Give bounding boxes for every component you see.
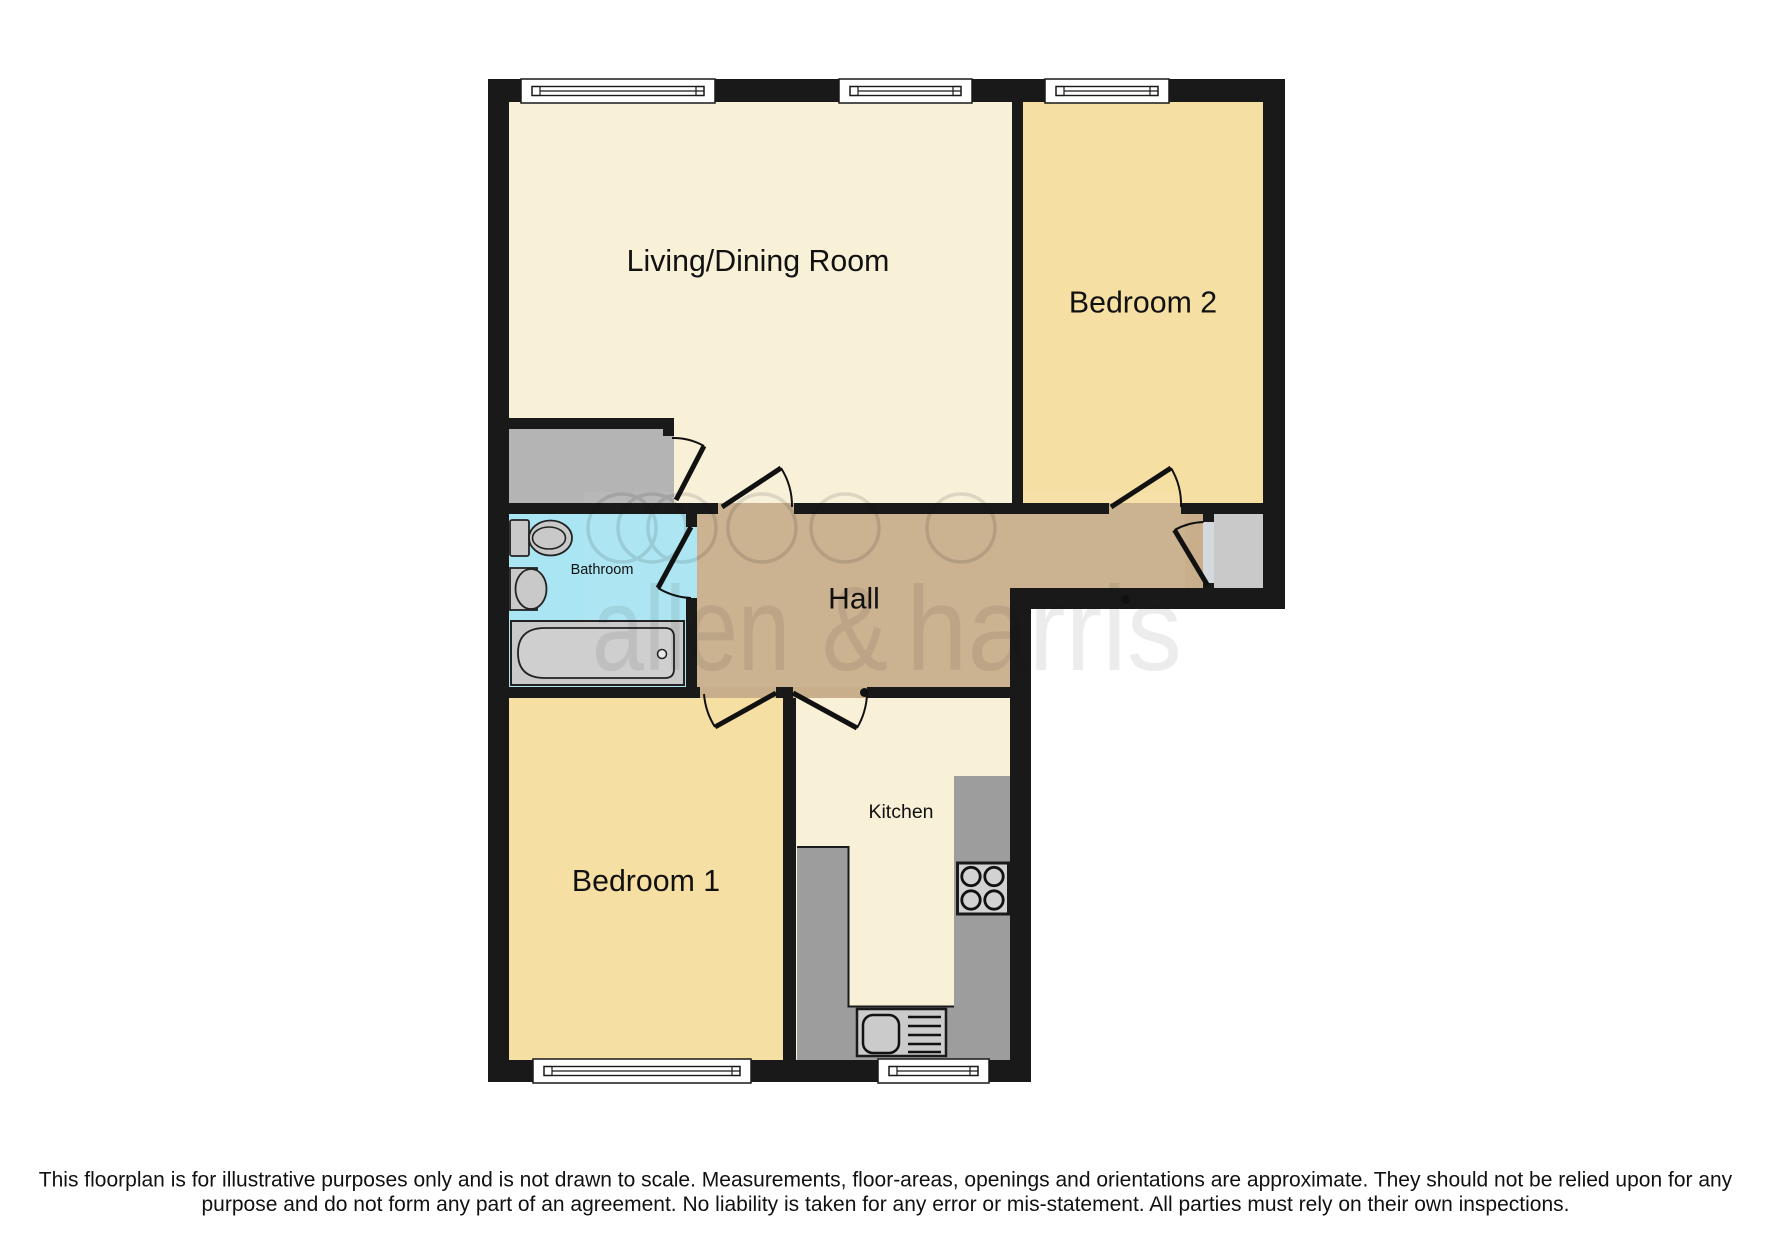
svg-text:Bedroom 1: Bedroom 1 — [572, 865, 720, 898]
svg-text:harris: harris — [906, 562, 1182, 696]
svg-text:Kitchen: Kitchen — [868, 801, 933, 823]
svg-text:This floorplan is for illustra: This floorplan is for illustrative purpo… — [39, 1169, 1733, 1192]
svg-text:allen: allen — [592, 562, 790, 696]
svg-text:purpose and do not form any pa: purpose and do not form any part of an a… — [202, 1193, 1570, 1216]
svg-text:Bedroom 2: Bedroom 2 — [1069, 287, 1217, 320]
svg-text:Living/Dining Room: Living/Dining Room — [627, 245, 890, 278]
svg-text:&: & — [822, 562, 888, 696]
